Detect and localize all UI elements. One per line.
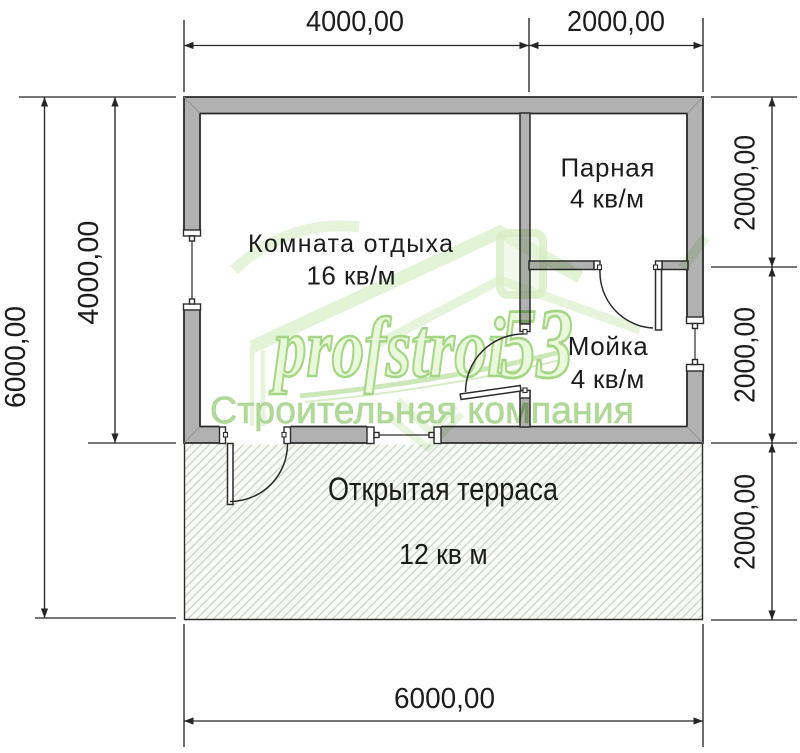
svg-text:16 кв/м: 16 кв/м: [307, 261, 396, 291]
svg-text:2000,00: 2000,00: [730, 307, 762, 403]
svg-text:Парная: Парная: [561, 153, 655, 183]
svg-text:Открытая терраса: Открытая терраса: [328, 471, 558, 507]
svg-text:4 кв/м: 4 кв/м: [570, 184, 644, 214]
svg-text:Комната отдыха: Комната отдыха: [248, 230, 453, 258]
svg-text:6000,00: 6000,00: [0, 306, 32, 408]
svg-text:profstroi: profstroi: [269, 301, 506, 395]
svg-text:2000,00: 2000,00: [730, 474, 762, 570]
svg-text:Строительная компания: Строительная компания: [210, 390, 634, 432]
svg-text:6000,00: 6000,00: [394, 683, 495, 715]
svg-text:12 кв м: 12 кв м: [399, 539, 488, 571]
svg-text:4000,00: 4000,00: [73, 221, 105, 325]
svg-text:2000,00: 2000,00: [567, 6, 665, 38]
svg-text:4000,00: 4000,00: [306, 6, 404, 38]
svg-text:2000,00: 2000,00: [730, 135, 762, 231]
svg-text:53: 53: [500, 288, 573, 399]
svg-text:4 кв/м: 4 кв/м: [571, 364, 645, 394]
svg-text:Мойка: Мойка: [568, 331, 649, 361]
